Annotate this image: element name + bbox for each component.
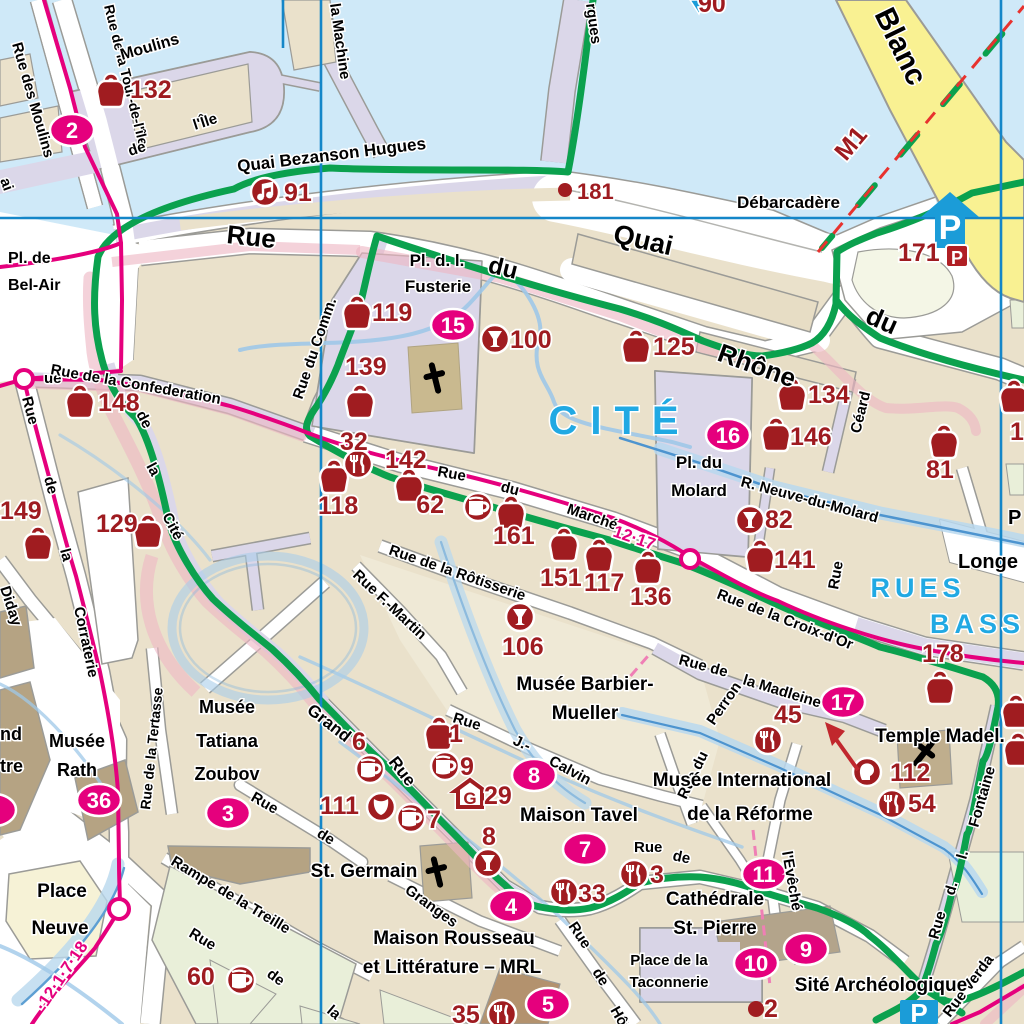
svg-text:Pl. d. l.: Pl. d. l. — [410, 251, 465, 270]
svg-text:111: 111 — [320, 792, 359, 820]
svg-text:BASSES: BASSES — [930, 609, 1024, 639]
svg-text:de: de — [671, 847, 692, 867]
svg-text:134: 134 — [808, 381, 850, 409]
svg-text:6: 6 — [352, 728, 366, 756]
svg-text:Maison Tavel: Maison Tavel — [520, 805, 638, 826]
svg-text:125: 125 — [653, 333, 695, 361]
svg-text:RUES: RUES — [870, 573, 965, 603]
svg-text:8: 8 — [482, 823, 496, 851]
svg-text:Musée: Musée — [199, 697, 255, 717]
svg-text:Place de la: Place de la — [630, 952, 708, 969]
svg-text:36: 36 — [87, 788, 111, 813]
svg-text:82: 82 — [765, 506, 793, 534]
svg-text:119: 119 — [372, 299, 412, 327]
svg-text:9: 9 — [800, 937, 812, 962]
svg-text:60: 60 — [187, 963, 215, 991]
svg-text:3: 3 — [650, 861, 664, 889]
svg-text:Mueller: Mueller — [552, 703, 619, 724]
svg-text:142: 142 — [385, 446, 427, 474]
svg-text:161: 161 — [493, 522, 535, 550]
svg-text:5: 5 — [542, 992, 554, 1017]
svg-text:Cathédrale: Cathédrale — [666, 889, 764, 910]
svg-text:146: 146 — [790, 423, 832, 451]
svg-text:Molard: Molard — [671, 481, 727, 500]
svg-text:Musée International: Musée International — [653, 770, 831, 791]
svg-text:91: 91 — [284, 179, 312, 207]
svg-text:Rath: Rath — [57, 760, 97, 780]
svg-text:de la Réforme: de la Réforme — [687, 804, 813, 825]
svg-text:4: 4 — [505, 894, 518, 919]
svg-text:15: 15 — [441, 313, 465, 338]
svg-text:Zoubov: Zoubov — [195, 764, 260, 784]
svg-text:129: 129 — [96, 510, 138, 538]
svg-text:90: 90 — [698, 0, 726, 18]
svg-text:81: 81 — [926, 456, 954, 484]
svg-text:et Littérature – MRL: et Littérature – MRL — [363, 957, 542, 978]
svg-text:Temple Madel.: Temple Madel. — [875, 726, 1005, 747]
svg-text:St. Germain: St. Germain — [311, 861, 418, 882]
svg-text:1: 1 — [449, 720, 463, 748]
svg-text:P: P — [910, 998, 927, 1024]
svg-text:141: 141 — [774, 546, 816, 574]
svg-text:Sité Archéologique: Sité Archéologique — [795, 975, 967, 996]
svg-text:Rue: Rue — [634, 839, 662, 856]
svg-text:29: 29 — [484, 782, 512, 810]
svg-text:54: 54 — [908, 790, 936, 818]
svg-text:2: 2 — [764, 995, 778, 1023]
svg-text:35: 35 — [452, 1001, 480, 1024]
svg-text:7: 7 — [427, 806, 441, 834]
svg-text:7: 7 — [579, 837, 591, 862]
svg-text:45: 45 — [774, 701, 802, 729]
svg-text:1: 1 — [1010, 418, 1024, 446]
svg-text:Maison Rousseau: Maison Rousseau — [373, 928, 535, 949]
svg-text:8: 8 — [528, 763, 540, 788]
svg-text:16: 16 — [716, 423, 740, 448]
svg-text:P: P — [939, 209, 962, 247]
svg-text:Bel-Air: Bel-Air — [8, 277, 60, 294]
svg-text:178: 178 — [922, 640, 964, 668]
svg-text:P: P — [951, 248, 963, 268]
svg-text:P: P — [1008, 507, 1021, 529]
svg-text:9: 9 — [460, 753, 474, 781]
svg-text:106: 106 — [502, 633, 544, 661]
svg-text:11: 11 — [752, 862, 775, 887]
svg-text:171: 171 — [898, 239, 940, 267]
svg-text:17: 17 — [831, 690, 855, 715]
svg-text:10: 10 — [744, 951, 768, 976]
svg-text:Débarcadère: Débarcadère — [737, 193, 840, 212]
svg-text:100: 100 — [510, 326, 552, 354]
svg-text:Musée: Musée — [49, 731, 105, 751]
svg-text:33: 33 — [578, 880, 606, 908]
svg-text:Taconnerie: Taconnerie — [630, 974, 709, 991]
svg-text:2: 2 — [66, 118, 78, 143]
svg-text:St. Pierre: St. Pierre — [673, 918, 756, 939]
svg-text:Neuve: Neuve — [31, 918, 88, 939]
svg-text:151: 151 — [540, 564, 582, 592]
svg-text:117: 117 — [584, 569, 624, 597]
svg-text:62: 62 — [416, 491, 444, 519]
svg-text:tre: tre — [0, 756, 23, 776]
svg-text:148: 148 — [98, 389, 140, 417]
svg-text:136: 136 — [630, 583, 672, 611]
svg-text:Pl. de: Pl. de — [8, 250, 51, 267]
svg-text:Longe: Longe — [958, 551, 1018, 573]
svg-text:32: 32 — [340, 428, 368, 456]
svg-text:Place: Place — [37, 881, 87, 902]
svg-text:Fusterie: Fusterie — [405, 277, 471, 296]
svg-text:Tatiana: Tatiana — [196, 731, 259, 751]
svg-text:nd: nd — [0, 724, 22, 744]
svg-text:3: 3 — [222, 801, 234, 826]
svg-text:Musée Barbier-: Musée Barbier- — [516, 674, 653, 695]
svg-text:132: 132 — [130, 76, 172, 104]
svg-text:118: 118 — [318, 492, 358, 520]
svg-text:Pl. du: Pl. du — [676, 453, 722, 472]
svg-text:181: 181 — [577, 179, 614, 204]
svg-text:149: 149 — [0, 497, 42, 525]
svg-text:112: 112 — [890, 759, 930, 787]
svg-text:Rue: Rue — [225, 219, 277, 254]
svg-text:CITÉ: CITÉ — [548, 398, 691, 443]
svg-text:139: 139 — [345, 353, 387, 381]
